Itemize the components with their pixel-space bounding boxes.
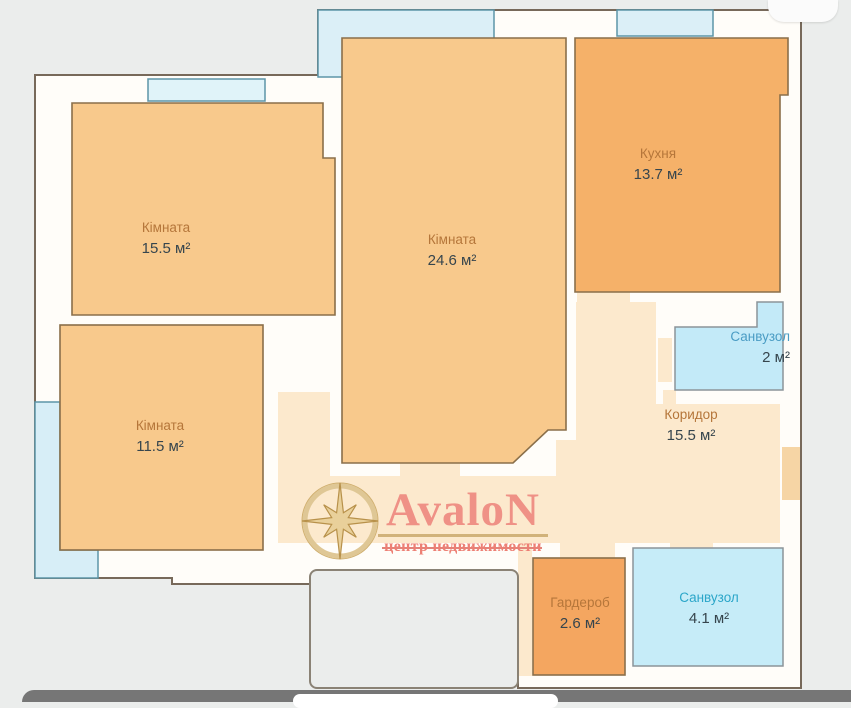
brand-tagline: центр недвижимости: [380, 539, 546, 555]
wardrobe-shape: [533, 558, 625, 675]
room-3-shape: [60, 325, 263, 550]
room-2-shape: [342, 38, 566, 463]
kitchen-shape: [575, 38, 788, 292]
floor-plan-drawing: [0, 0, 851, 700]
top-balcony-right: [617, 10, 713, 36]
compass-icon: [302, 483, 378, 559]
camera-cutout-pill: [768, 0, 838, 22]
stairwell-block: [310, 570, 518, 688]
bathroom-41-shape: [633, 548, 783, 666]
home-indicator-pill[interactable]: [293, 694, 558, 708]
brand-underline: [378, 534, 548, 537]
brand-tagline-wrap: центр недвижимости: [380, 539, 546, 555]
room-1-shape: [72, 103, 335, 315]
window-top-left: [148, 79, 265, 101]
floor-plan-screenshot: Кімната 15.5 м² Кімната 24.6 м² Кухня 13…: [0, 0, 851, 700]
